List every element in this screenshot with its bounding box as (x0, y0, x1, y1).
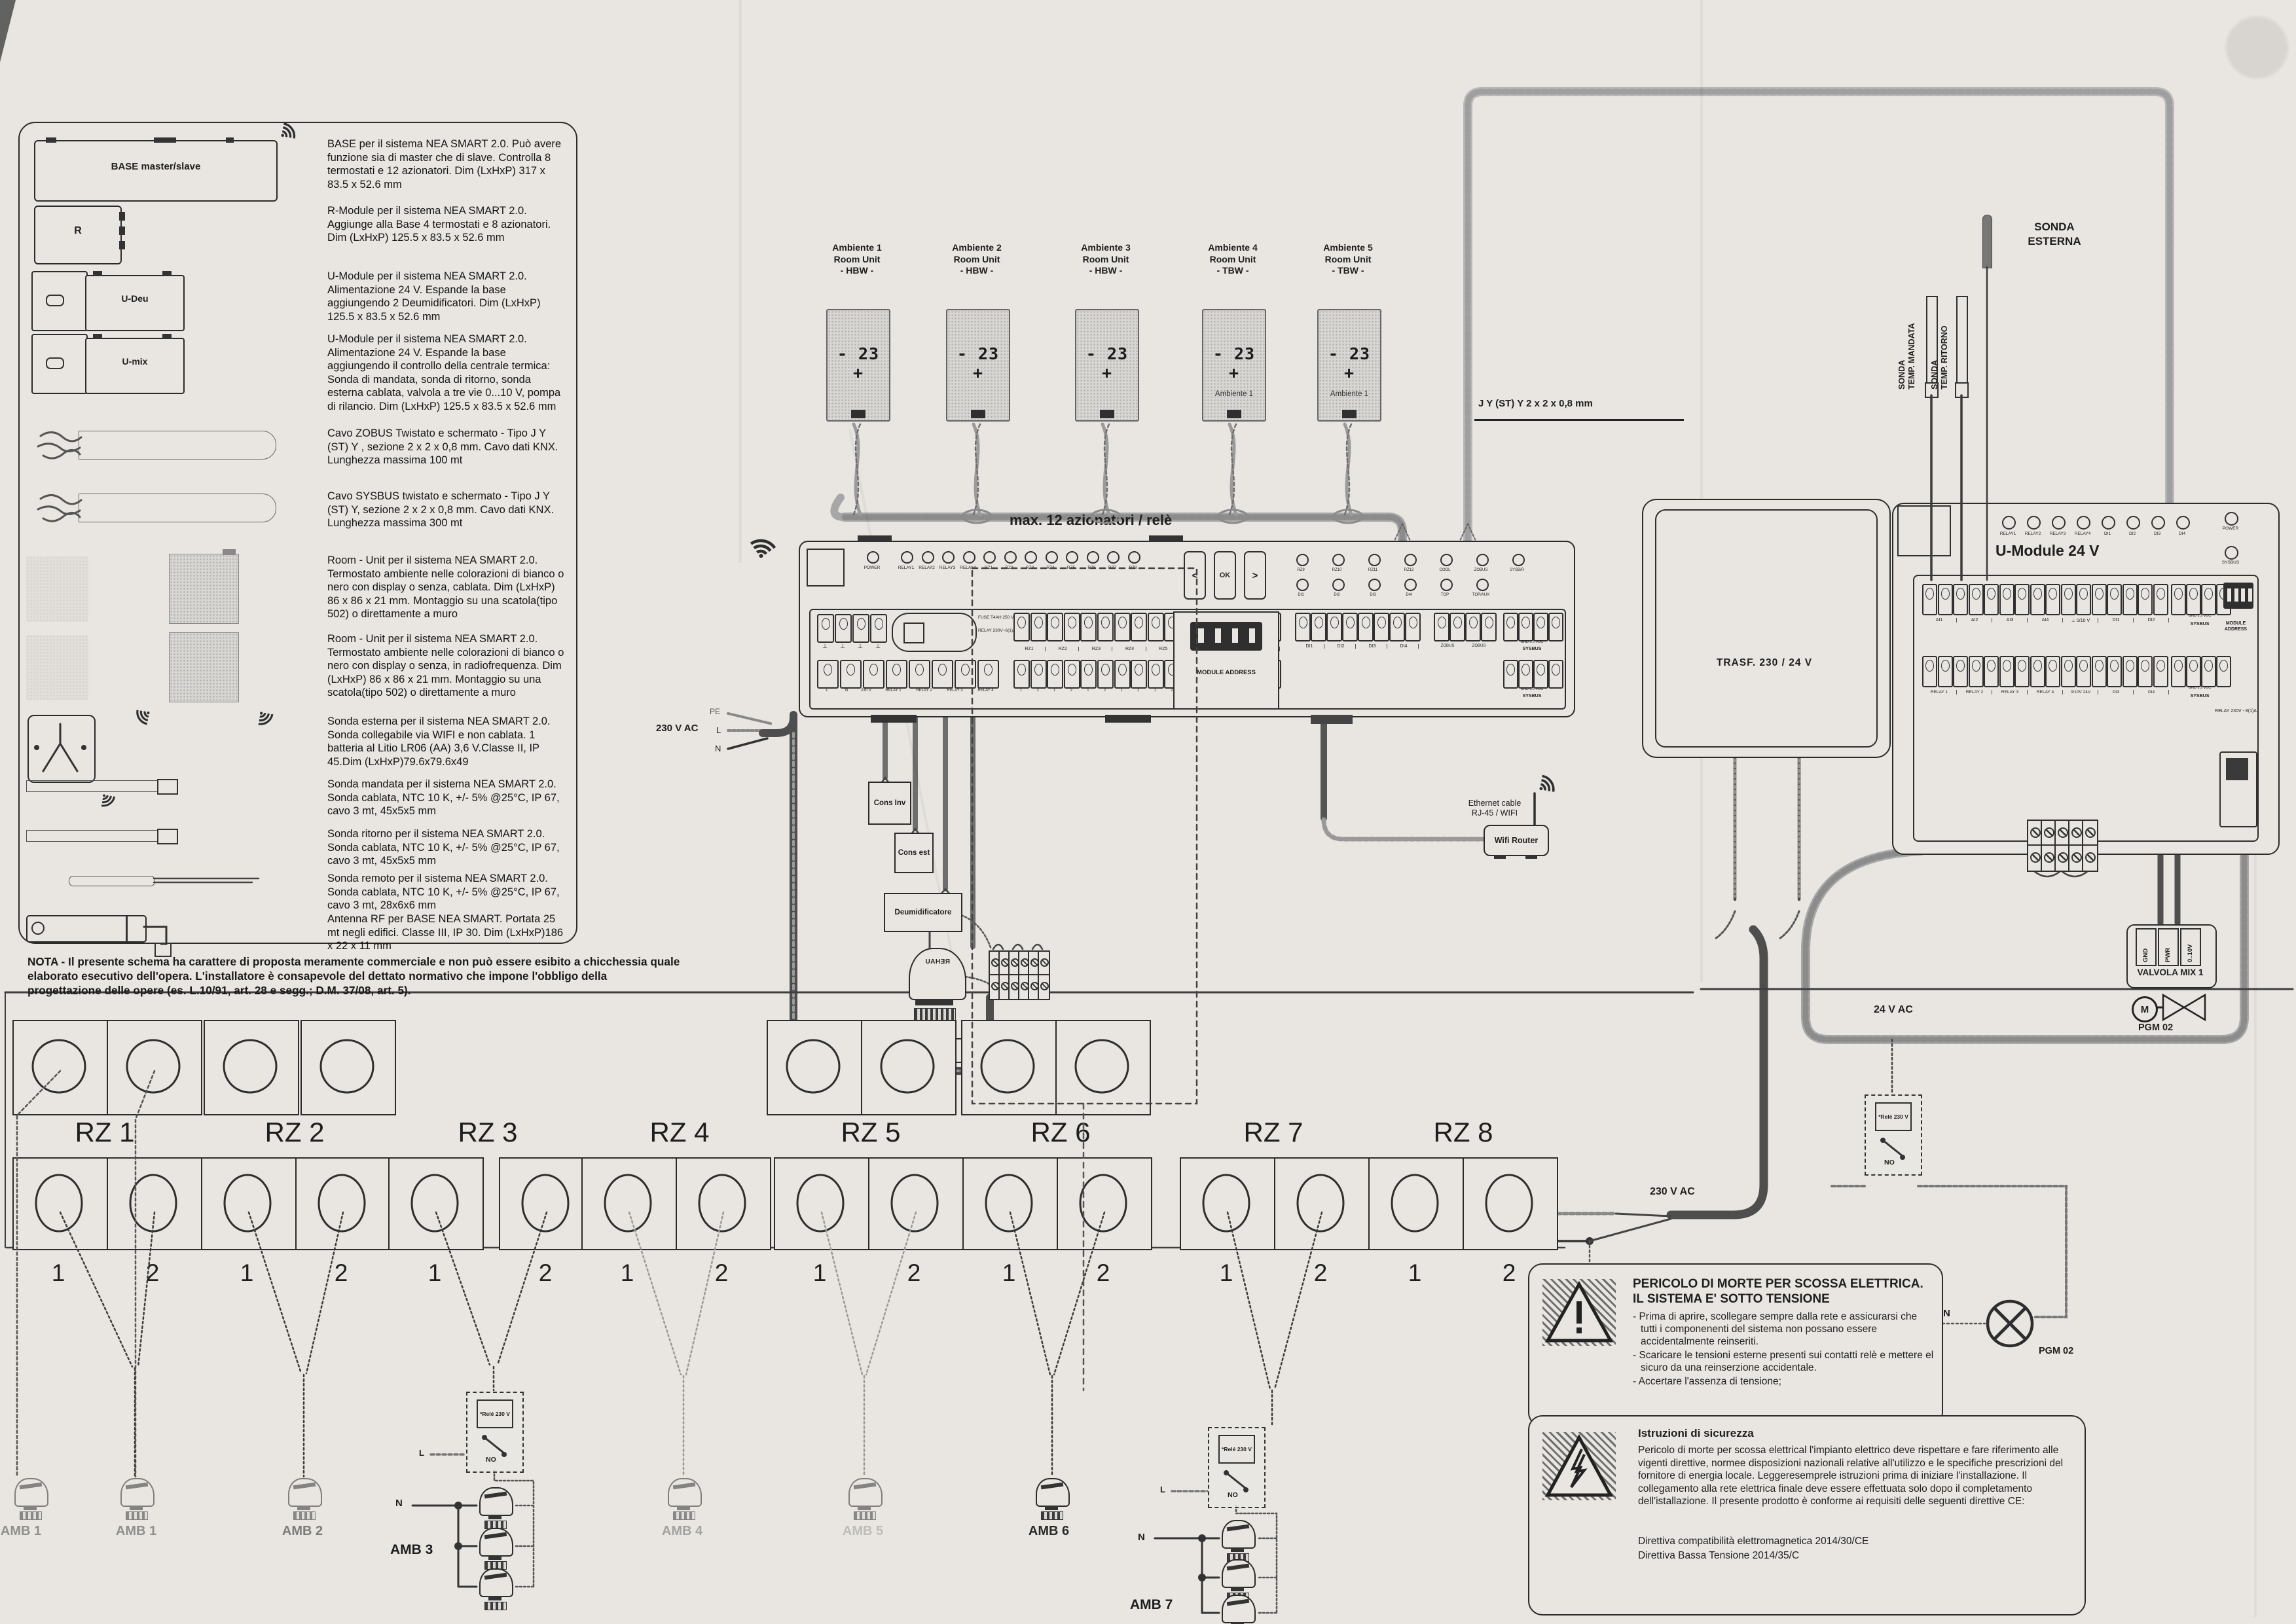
room-unit-thermostat[interactable]: - 23 +Ambiente 1 (1317, 309, 1381, 422)
umodule-sysbus-terminal-row2[interactable] (2171, 656, 2186, 687)
legend-item-desc: Room - Unit per il sistema NEA SMART 2.0… (327, 632, 568, 700)
umodule-terminal-row1[interactable] (2030, 584, 2045, 615)
base-led-label: RZ12 (1393, 568, 1425, 573)
manifold-box-top (12, 1020, 108, 1115)
amb-actuator-foot (126, 1511, 148, 1520)
dip-switch[interactable] (2241, 588, 2245, 602)
sysbus-bus (1468, 92, 2170, 562)
manifold-box-bottom (962, 1157, 1058, 1250)
amb-actuator-neck (130, 1506, 143, 1510)
manifold-box-bottom (581, 1157, 677, 1250)
cable-icon (79, 494, 276, 522)
base-power-block (892, 613, 977, 652)
zone-label: RZ 3 (429, 1117, 547, 1148)
valvola-strip-cell[interactable] (1038, 974, 1050, 1000)
base-led-label: TOP (1429, 593, 1461, 598)
room-unit-drop (974, 424, 980, 514)
umodule-terminal-row2[interactable] (2153, 656, 2168, 687)
icon-nub (223, 549, 236, 555)
pin-number: 2 (1097, 689, 1112, 693)
warning2-title: Istruzioni di sicurezza (1638, 1427, 1754, 1440)
room-unit-heading: Ambiente 1Room Unit- HBW - (806, 242, 908, 277)
dip-switch[interactable] (2248, 588, 2252, 602)
base-sysbus-terminal[interactable] (1503, 613, 1518, 641)
room-unit-ambiente: Ambiente 4 (1182, 242, 1284, 254)
wire-to-strip (965, 977, 990, 984)
room-unit-type: Room Unit (1055, 254, 1157, 266)
cable-label: J Y (ST) Y 2 x 2 x 0,8 mm (1478, 398, 1681, 409)
manifold-box-bottom (868, 1157, 964, 1250)
supply-230-right-label: 230 V AC (1650, 1186, 1695, 1198)
base-rz-terminal-top[interactable] (1148, 613, 1164, 641)
manifold-box-top (861, 1020, 957, 1115)
deumidificatore-box: Deumidificatore (884, 893, 962, 932)
base-power-terminal[interactable] (886, 660, 907, 689)
umodule-terminal-row1[interactable] (2153, 584, 2168, 615)
pin-number: 1 (1114, 689, 1129, 693)
legend-item-desc: Cavo ZOBUS Twistato e schermato - Tipo J… (327, 427, 568, 467)
base-power-terminal[interactable] (932, 660, 953, 689)
amb-actuator-foot (1041, 1511, 1063, 1520)
junction-dot (1586, 1238, 1593, 1244)
pin-number: 2 (1030, 689, 1046, 693)
amb7-actuator-body (1222, 1595, 1256, 1623)
umodule-terminal-row1[interactable] (1984, 584, 1999, 615)
base-di-terminal[interactable] (1374, 613, 1389, 641)
base-led-di2 (1332, 579, 1345, 591)
wifi-arc (1540, 780, 1551, 791)
next-button[interactable]: > (1244, 551, 1266, 600)
umodule-terminal-row1[interactable] (1922, 584, 1937, 615)
valvola-mix-term[interactable]: PWR (2158, 928, 2179, 966)
actuator-number: 2 (133, 1259, 172, 1287)
sonda-ritorno-cap (1955, 382, 1969, 398)
sonda-esterna-probe (1982, 215, 1992, 268)
umodule-relay-note: RELAY 230V - 8(1)A (2214, 708, 2257, 714)
room-unit-connector (1100, 410, 1114, 418)
base-led-power (867, 551, 879, 564)
legend-item-desc: U-Module per il sistema NEA SMART 2.0. A… (327, 333, 568, 413)
umodule-terminal-row2[interactable] (2014, 656, 2030, 687)
actuator-number: 1 (415, 1259, 454, 1287)
umodule-terminal-row2[interactable] (1938, 656, 1953, 687)
umodule-sysbus-terminal-row1[interactable] (2201, 584, 2216, 615)
base-terminal[interactable] (817, 614, 834, 643)
room-unit-thermostat[interactable]: - 23 + (1075, 309, 1139, 422)
room-unit-type: Room Unit (1182, 254, 1284, 266)
base-relay-term-label: RELAY 3 (940, 689, 970, 693)
umodule-terminal-row1[interactable] (2076, 584, 2091, 615)
base-rz-terminal-bottom[interactable] (1030, 660, 1047, 689)
amb-actuator-body (288, 1478, 322, 1507)
rehau-label: REHAU (910, 958, 965, 965)
trasf-stub (1735, 755, 1799, 899)
cable-label-underline (1474, 419, 1684, 421)
amb-label: AMB 5 (830, 1524, 896, 1539)
manifold-box-bottom (1274, 1157, 1370, 1250)
manifold-box-bottom (201, 1157, 297, 1250)
room-unit-sub-label: Ambiente 1 (1319, 390, 1380, 398)
umodule-terminal-row2[interactable] (1922, 656, 1937, 687)
amb-actuator-body (1036, 1478, 1070, 1507)
wifi-dot (1539, 787, 1543, 791)
amb-actuator-foot (673, 1511, 695, 1520)
umodule-terminal-row2[interactable] (2092, 656, 2107, 687)
sonda-ritorno-probe (1956, 296, 1968, 385)
base-di-terminal[interactable] (1342, 613, 1358, 641)
warning2-directive2: Direttiva Bassa Tensione 2014/35/C (1638, 1550, 2070, 1562)
dip-switch[interactable] (2227, 588, 2231, 602)
screw (2071, 827, 2082, 838)
antenna-divider (126, 916, 128, 941)
screw (2030, 827, 2041, 838)
electric-hazard-icon (1542, 1432, 1616, 1500)
base-led-top (1440, 579, 1453, 591)
base-rz-terminal-top[interactable] (1097, 613, 1114, 641)
base-rz-terminal-top[interactable] (1064, 613, 1080, 641)
umodule-terminal-row2[interactable] (1953, 656, 1968, 687)
umodule-row1-label: DI1 (2099, 618, 2134, 623)
umodule-terminal-row2[interactable] (1999, 656, 2014, 687)
paper-crease (1700, 0, 1703, 982)
dip-switch[interactable] (1198, 628, 1204, 643)
base-bottom-tab (1105, 715, 1151, 723)
base-sysbus-terminal[interactable] (1548, 613, 1563, 641)
room-unit-thermostat[interactable]: - 23 + (826, 309, 890, 422)
sonda-esterna-line1: SONDA (2002, 220, 2107, 234)
base-di-label: DI1 (1295, 644, 1324, 649)
zone-label: RZ 6 (1002, 1117, 1120, 1148)
umodule-terminal-row2[interactable] (2045, 656, 2060, 687)
ethernet-label-2: RJ-45 / WIFI (1446, 808, 1544, 818)
base-sysbus-label: SYSBUS (1502, 647, 1562, 651)
base-zobus-terminal[interactable] (1449, 613, 1465, 641)
umodule-sysbus-terminal-row2[interactable] (2216, 656, 2231, 687)
base-sysbus-terminal[interactable] (1518, 613, 1533, 641)
room-unit-heading: Ambiente 4Room Unit- TBW - (1182, 242, 1284, 277)
umodule-terminal-row2[interactable] (2138, 656, 2153, 687)
manifold-box-top (1055, 1020, 1151, 1115)
icon-nub (93, 334, 102, 339)
umodule-led-label: RELAY4 (2069, 532, 2096, 536)
valvola-mix-term[interactable]: GND (2136, 928, 2157, 966)
valvola-mix-pgm: PGM 02 (2138, 1022, 2173, 1033)
manifold-box-top (961, 1020, 1057, 1115)
base-rz-terminal-top[interactable] (1047, 613, 1063, 641)
base-sysbus-terminal-2[interactable] (1533, 660, 1548, 689)
base-terminal[interactable] (870, 614, 887, 643)
room-unit-type: Room Unit (926, 254, 1028, 266)
base-terminal[interactable] (835, 614, 852, 643)
trasf-strip-cell[interactable] (2082, 844, 2098, 872)
base-led-rz6 (1087, 551, 1099, 564)
room-unit-drop (1230, 424, 1236, 514)
module-address-block: MODULE ADDRESS (1173, 611, 1279, 710)
base-led-label: RZ5 (1060, 566, 1082, 570)
scan-edge (0, 0, 16, 62)
amb7-actuator-body (1222, 1520, 1256, 1549)
umodule-led-di2 (2126, 516, 2140, 530)
base-rz-terminal-bottom[interactable] (1080, 660, 1097, 689)
pump-n-label: N (1943, 1308, 1950, 1319)
base-rz-terminal-bottom[interactable] (1097, 660, 1114, 689)
base-zobus-terminal[interactable] (1465, 613, 1481, 641)
base-led-label: RZ4 (1040, 566, 1062, 570)
base-power-terminal[interactable] (955, 660, 976, 689)
umodule-terminal-row1[interactable] (1969, 584, 1984, 615)
base-rz-label: RZ4 (1114, 647, 1146, 651)
rele-box-pump: *Relé 230 VNO (1865, 1094, 1922, 1176)
base-title: max. 12 azionatori / relè (1010, 512, 1172, 529)
r-module-icon: R (34, 206, 122, 264)
base-terminal[interactable] (852, 614, 869, 643)
room-unit-drop (1230, 424, 1236, 514)
base-rz-terminal-bottom[interactable] (1114, 660, 1131, 689)
umodule-row2-label: 0/10V 24V (2064, 690, 2098, 695)
base-rz-label: RZ2 (1047, 647, 1079, 651)
junction-dot (455, 1502, 462, 1509)
dip-switch[interactable] (1249, 628, 1255, 643)
wire-rz5 (822, 1212, 916, 1477)
actuator-number: 2 (1301, 1259, 1340, 1287)
room-unit-ambiente: Ambiente 1 (806, 242, 908, 254)
wire-l-right (1616, 1214, 1671, 1216)
umodule-terminal-row1[interactable] (2014, 584, 2030, 615)
amb-actuator-body (14, 1478, 48, 1507)
bus-junction (962, 510, 991, 523)
sonda-esterna-label: SONDA ESTERNA (2002, 220, 2107, 249)
base-rz-terminal-bottom[interactable] (1013, 660, 1030, 689)
room-unit-connector (1342, 410, 1357, 418)
base-led-sysb/r (1512, 554, 1525, 566)
amb-actuator (846, 1478, 883, 1519)
dip-switch[interactable] (1232, 628, 1238, 643)
umodule-led-label: DI1 (2094, 532, 2121, 536)
wifi-arc (1540, 776, 1556, 792)
cons-inv-label: Cons Inv (874, 799, 906, 808)
base-power-terminal[interactable] (909, 660, 930, 689)
base-di-terminal[interactable] (1389, 613, 1405, 641)
umodule-terminal-row1[interactable] (2092, 584, 2107, 615)
umodule-terminal-row1[interactable] (1953, 584, 1968, 615)
base-led-cool (1440, 554, 1453, 566)
rele-box-pump-no-label: NO (1884, 1159, 1895, 1166)
wifi-arc (751, 534, 774, 558)
module-address-label: MODULE ADDRESS (1180, 669, 1272, 677)
room-unit-thermostat[interactable]: - 23 + (946, 309, 1010, 422)
base-sysbus-terminal-2[interactable] (1503, 660, 1518, 689)
base-rz-terminal-bottom[interactable] (1047, 660, 1063, 689)
legend-item-desc: Sonda ritorno per il sistema NEA SMART 2… (327, 827, 568, 868)
room-unit-heading: Ambiente 2Room Unit- HBW - (926, 242, 1028, 277)
valvola-strip-cell[interactable] (1038, 950, 1050, 977)
umodule-led-relay1 (2002, 516, 2016, 530)
base-led-label: RELAY2 (916, 566, 938, 570)
base-di-terminal[interactable] (1405, 613, 1421, 641)
base-icon-label: BASE master/slave (35, 161, 276, 172)
ok-button[interactable]: OK (1214, 551, 1236, 600)
supply-230-left-label: 230 V AC (656, 723, 698, 734)
umodule-sysbus-terminal-row1[interactable] (2171, 584, 2186, 615)
wire-to-strip (961, 915, 991, 949)
umodule-terminal-row1[interactable] (1999, 584, 2014, 615)
wire-n-right (1590, 1219, 1671, 1241)
base-led-rz11 (1368, 554, 1381, 566)
umodule-row1-label: ⊥ 0/10 V (2064, 618, 2098, 623)
base-led-label: RELAY1 (895, 566, 917, 570)
cons-inv-box: Cons Inv (868, 782, 911, 825)
motor-label: M (2141, 1004, 2149, 1015)
base-led-di4 (1404, 579, 1417, 591)
base-zobus-terminal[interactable] (1481, 613, 1497, 641)
room-unit-connector (1227, 410, 1241, 418)
u-module-icon-plug (46, 295, 64, 306)
amb7-l-label: L (1160, 1485, 1165, 1494)
base-led-rz12 (1404, 554, 1417, 566)
umodule-sysbus-terminal-row1[interactable] (2186, 584, 2201, 615)
pin-number: 2 (1064, 689, 1079, 693)
umodule-terminal-row1[interactable] (1938, 584, 1953, 615)
ground-symbol: ⊥ (870, 643, 886, 650)
valvola-mix-term[interactable]: 0..10V (2180, 928, 2201, 966)
base-sysbus-terminal-2[interactable] (1548, 660, 1563, 689)
umodule-terminal-row2[interactable] (2061, 656, 2076, 687)
base-zobus-terminal[interactable] (1434, 613, 1449, 641)
rele-box-amb3: *Relé 230 VNO (466, 1392, 524, 1473)
wire-rz1 (60, 1212, 155, 1477)
umodule-sysbus-terminal-row2[interactable] (2201, 656, 2216, 687)
antenna-icon (26, 915, 147, 943)
umodule-relay-chip (2226, 758, 2248, 780)
base-rz-terminal-bottom[interactable] (1131, 660, 1147, 689)
base-sysbus-terminal[interactable] (1533, 613, 1548, 641)
umodule-led-relay4 (2077, 516, 2090, 530)
base-power-terminal[interactable] (863, 660, 884, 689)
room-unit-heading: Ambiente 3Room Unit- HBW - (1055, 242, 1157, 277)
u-module-icon-right: U-Deu (85, 275, 185, 331)
umodule-terminal-row2[interactable] (2030, 656, 2045, 687)
base-led-label: RZ10 (1321, 568, 1353, 573)
dip-switch[interactable] (2234, 588, 2238, 602)
base-rz-terminal-bottom[interactable] (1148, 660, 1164, 689)
legend-item-desc: BASE per il sistema NEA SMART 2.0. Può a… (327, 137, 568, 191)
amb3-actuator-neck (488, 1596, 501, 1600)
base-led-label: SYSB/R (1501, 568, 1533, 573)
base-sysbus-terminal-2[interactable] (1518, 660, 1533, 689)
umodule-led-relay3 (2052, 516, 2066, 530)
base-power-terminal[interactable] (977, 660, 999, 689)
umodule-terminal-row1[interactable] (2107, 584, 2122, 615)
amb-actuator (12, 1478, 48, 1519)
cons-est-box: Cons est (894, 833, 934, 873)
amb-label: AMB 2 (270, 1524, 335, 1539)
actuator-number: 1 (608, 1259, 647, 1287)
umodule-terminal-row2[interactable] (2123, 656, 2138, 687)
umodule-led-label: RELAY3 (2044, 532, 2071, 536)
sonda-esterna-line2: ESTERNA (2002, 234, 2107, 249)
base-rz-terminal-bottom[interactable] (1064, 660, 1080, 689)
pin-number: 2 (1131, 689, 1146, 693)
base-rz-terminal-top[interactable] (1030, 613, 1047, 641)
amb-actuator-foot (20, 1511, 42, 1520)
umodule-led-power (2225, 512, 2238, 526)
room-unit-variant: - HBW - (806, 265, 908, 277)
schematic-page: BASE per il sistema NEA SMART 2.0. Può a… (0, 0, 2296, 1624)
trasf-stub-tail (1715, 911, 1799, 939)
manifold-box-bottom (676, 1157, 771, 1250)
screw (1040, 958, 1049, 967)
manifold-box-bottom (499, 1157, 594, 1250)
umodule-terminal-row2[interactable] (2107, 656, 2122, 687)
base-led-label: RZ8 (1122, 566, 1144, 570)
warning2-directive1: Direttiva compatibilità elettromagnetica… (1638, 1536, 2070, 1547)
umodule-terminal-row1[interactable] (2061, 584, 2076, 615)
base-di-terminal[interactable] (1311, 613, 1326, 641)
manifold-box-bottom (388, 1157, 484, 1250)
u-module-icon-label: U-Deu (86, 293, 183, 304)
bus-junction (1334, 510, 1362, 523)
umodule-led-di1 (2102, 516, 2115, 530)
wifi-arc (754, 541, 771, 558)
umodule-row2-label: RELAY 2 (1958, 690, 1992, 695)
sonda-ritorno-line1: SONDA (1930, 226, 1940, 389)
screw (2044, 852, 2054, 863)
base-rz-terminal-top[interactable] (1114, 613, 1131, 641)
room-unit-ambiente: Ambiente 3 (1055, 242, 1157, 254)
sonda-probe-icon (26, 830, 158, 842)
trasf-strip-cell[interactable] (2082, 820, 2098, 847)
legend-item-desc: Antenna RF per BASE NEA SMART. Portata 2… (327, 912, 568, 953)
umodule-terminal-row2[interactable] (2076, 656, 2091, 687)
base-rz-terminal-top[interactable] (1080, 613, 1097, 641)
amb-actuator (665, 1478, 702, 1519)
zone-label: RZ 8 (1404, 1117, 1522, 1148)
manifold-box-bottom (295, 1157, 391, 1250)
legend-item-desc: Room - Unit per il sistema NEA SMART 2.0… (327, 554, 568, 621)
ground-symbol: ⊥ (852, 643, 868, 650)
base-di-terminal[interactable] (1295, 613, 1311, 641)
base-rz-label: RZ1 (1013, 647, 1046, 651)
umodule-terminal-row1[interactable] (2138, 584, 2153, 615)
base-rz-terminal-top[interactable] (1131, 613, 1147, 641)
prev-button[interactable]: < (1184, 551, 1206, 600)
room-unit-icon (169, 554, 239, 624)
base-rz-terminal-top[interactable] (1013, 613, 1030, 641)
wifi-arc (1540, 784, 1546, 790)
base-di-terminal[interactable] (1358, 613, 1374, 641)
umodule-terminal-row2[interactable] (1984, 656, 1999, 687)
umodule-sysbus-terminal-row2[interactable] (2186, 656, 2201, 687)
junction-dot (1199, 1535, 1205, 1542)
umodule-terminal-row1[interactable] (2123, 584, 2138, 615)
wire-rz4 (629, 1212, 723, 1477)
base-power-terminal[interactable] (840, 660, 862, 689)
ethernet-label-1: Ethernet cable (1446, 799, 1544, 808)
room-unit-thermostat[interactable]: - 23 +Ambiente 1 (1202, 309, 1266, 422)
dip-switch[interactable] (1215, 628, 1221, 643)
actuator-number: 1 (1207, 1259, 1246, 1287)
base-led-di1 (1296, 579, 1309, 591)
umodule-led-label: DI4 (2168, 532, 2196, 536)
umodule-terminal-row1[interactable] (2045, 584, 2060, 615)
legend-item-desc: Sonda esterna per il sistema NEA SMART 2… (327, 715, 568, 768)
umodule-terminal-row2[interactable] (1969, 656, 1984, 687)
base-wifi-icon (750, 534, 775, 559)
base-power-terminal[interactable] (817, 660, 839, 689)
base-led-rz9 (1296, 554, 1309, 566)
base-di-terminal[interactable] (1326, 613, 1342, 641)
legend-note: NOTA - Il presente schema ha carattere d… (27, 954, 682, 998)
